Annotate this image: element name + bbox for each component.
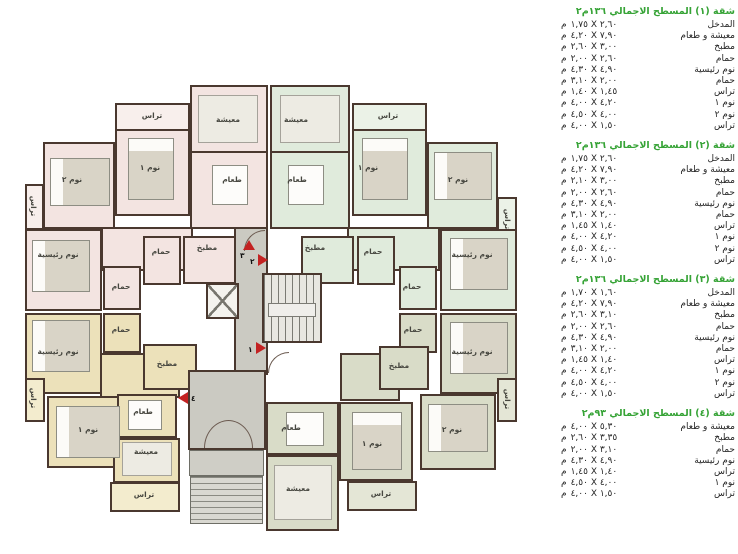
- dimension-value: ٤,٥٠ X ٤,٠٠: [571, 244, 618, 255]
- spec-row: تراسم٤,٠٠ X ١,٥٠: [561, 389, 735, 400]
- dimension-value: ٢,٠٠ X ٢,٦٠: [571, 188, 618, 199]
- room-name: تراس: [714, 389, 735, 400]
- unit-label: م: [561, 76, 567, 87]
- room-dimensions: م٤,٠٠ X ٤,٢٠: [561, 366, 617, 377]
- room-dimensions: م٤,٠٠ X ٤,٢٠: [561, 98, 617, 109]
- room-name: نوم ١: [715, 232, 735, 243]
- apartment-1-title: شقة (١) المسطح الاجمالي ١٣٦م٢: [561, 6, 735, 18]
- room-label: نوم ١: [140, 164, 160, 172]
- room-name: حمام: [716, 322, 735, 333]
- spec-row: نوم ٢م٤,٥٠ X ٤,٠٠: [561, 244, 735, 255]
- room-name: نوم رئيسية: [694, 456, 735, 467]
- unit-label: م: [561, 87, 567, 98]
- room-label: تراس: [29, 196, 37, 216]
- room-label: نوم رئيسية: [37, 251, 78, 259]
- room-dimensions: م٤,٢٠ X ٧,٩٠: [561, 299, 617, 310]
- room-label: مطبخ: [157, 360, 177, 368]
- building-floor-plan: تراس معيشة طعام نوم ١ نوم ٢ تراس نوم رئي…: [0, 0, 560, 554]
- entrance-porch: [189, 450, 264, 476]
- unit-label: م: [561, 210, 567, 221]
- room-dimensions: م٤,٥٠ X ٤,٠٠: [561, 478, 617, 489]
- room-label: تراس: [503, 209, 511, 229]
- room-label: حمام: [112, 283, 131, 291]
- dimension-value: ٢,٦٠ X ٣,٠٠: [571, 42, 618, 53]
- room-dimensions: م٢,٦٠ X ٣,٣٥: [561, 433, 617, 444]
- dimension-value: ٤,٠٠ X ٤,٢٠: [571, 366, 618, 377]
- table-glyph: [288, 165, 324, 205]
- entrance-marker-2: ٢: [250, 257, 255, 266]
- room-name: تراس: [714, 121, 735, 132]
- room-label: معيشة: [284, 116, 308, 124]
- spec-row: حمامم٣,١٠ X ٢,٠٠: [561, 76, 735, 87]
- room-label: طعام: [133, 408, 153, 416]
- dimension-value: ١,٤٥ X ١,٤٠: [571, 221, 618, 232]
- room-dimensions: م٤,٠٠ X ١,٥٠: [561, 121, 617, 132]
- dimension-value: ١,٧٥ X ٢,٦٠: [571, 20, 618, 31]
- room-dimensions: م١,٤٥ X ١,٤٠: [561, 467, 617, 478]
- spec-row: معيشة و طعامم٤,٠٠ X ٥,٣٠: [561, 422, 735, 433]
- room-label: معيشة: [216, 116, 240, 124]
- unit-label: م: [561, 299, 567, 310]
- room-name: المدخل: [707, 288, 735, 299]
- room-name: المدخل: [707, 20, 735, 31]
- floor-plan-page: تراس معيشة طعام نوم ١ نوم ٢ تراس نوم رئي…: [0, 0, 738, 554]
- room-label: مطبخ: [197, 244, 217, 252]
- elevator-glyph: [206, 283, 239, 319]
- spec-row: المدخلم١,٧٠ X ١,٦٠: [561, 288, 735, 299]
- spec-row: نوم رئيسيةم٤,٣٠ X ٤,٩٠: [561, 65, 735, 76]
- spec-row: معيشة و طعامم٤,٢٠ X ٧,٩٠: [561, 165, 735, 176]
- unit-label: م: [561, 54, 567, 65]
- entrance-arrow-3-icon: [243, 240, 255, 250]
- unit-label: م: [561, 422, 567, 433]
- unit-label: م: [561, 165, 567, 176]
- room-dimensions: م١,٤٥ X ١,٤٠: [561, 355, 617, 366]
- dimension-value: ٢,٠٠ X ٢,٦٠: [571, 54, 618, 65]
- room-name: مطبخ: [714, 42, 735, 53]
- entrance-marker-4: ٤: [191, 394, 196, 403]
- spec-row: مطبخم٢,٦٠ X ٣,٠٠: [561, 42, 735, 53]
- apartment-2-spec-block: شقة (٢) المسطح الاجمالي ١٣٦م٢ المدخلم١,٧…: [561, 140, 735, 266]
- room-name: حمام: [716, 445, 735, 456]
- spec-row: حمامم٢,٠٠ X ٢,٦٠: [561, 322, 735, 333]
- dimension-value: ٤,٣٠ X ٤,٩٠: [571, 456, 618, 467]
- room-dimensions: م٢,٦٠ X ٣,١٠: [561, 310, 617, 321]
- dimension-value: ١,٧٠ X ١,٦٠: [571, 288, 618, 299]
- room-label: حمام: [404, 326, 423, 334]
- unit-label: م: [561, 333, 567, 344]
- unit-label: م: [561, 378, 567, 389]
- unit-label: م: [561, 110, 567, 121]
- spec-row: تراسم٤,٠٠ X ١,٥٠: [561, 489, 735, 500]
- unit-label: م: [561, 322, 567, 333]
- stairs-glyph: [262, 273, 322, 343]
- room-label: تراس: [503, 389, 511, 409]
- spec-row: مطبخم٢,٦٠ X ٣,١٠: [561, 310, 735, 321]
- room-dimensions: م٤,٣٠ X ٤,٩٠: [561, 333, 617, 344]
- dimension-value: ٤,٠٠ X ١,٥٠: [571, 389, 618, 400]
- room-dimensions: م٤,٣٠ X ٤,٩٠: [561, 199, 617, 210]
- dimension-value: ٣,١٠ X ٢,٠٠: [571, 210, 618, 221]
- room-name: تراس: [714, 355, 735, 366]
- room-label: معيشة: [134, 448, 158, 456]
- spec-row: حمامم٢,٠٠ X ٢,٦٠: [561, 54, 735, 65]
- spec-row: حمامم٣,١٠ X ٢,٠٠: [561, 210, 735, 221]
- room-name: حمام: [716, 344, 735, 355]
- spec-row: نوم ٢م٤,٥٠ X ٤,٠٠: [561, 110, 735, 121]
- entrance-arrow-1-icon: [256, 342, 266, 354]
- room-name: حمام: [716, 210, 735, 221]
- door-arc: [268, 352, 289, 373]
- dimension-value: ٣,١٠ X ٢,٠٠: [571, 344, 618, 355]
- dimension-value: ٤,٢٠ X ٧,٩٠: [571, 165, 618, 176]
- dimension-value: ٤,٣٠ X ٤,٩٠: [571, 199, 618, 210]
- spec-row: تراسم١,٤٠ X ١,٤٥: [561, 87, 735, 98]
- dimension-value: ٤,٠٠ X ١,٥٠: [571, 255, 618, 266]
- unit-label: م: [561, 478, 567, 489]
- room-label: تراس: [142, 112, 162, 120]
- unit-label: م: [561, 489, 567, 500]
- spec-row: حمامم٢,٠٠ X ٣,١٠: [561, 445, 735, 456]
- apartment-3-title: شقة (٣) المسطح الاجمالي ١٣٦م٢: [561, 274, 735, 286]
- entrance-steps-glyph: [190, 476, 263, 524]
- room-label: مطبخ: [389, 362, 409, 370]
- unit-label: م: [561, 467, 567, 478]
- bed-glyph: [32, 320, 90, 372]
- dimension-value: ٢,٠٠ X ٣,١٠: [571, 445, 618, 456]
- room-label: معيشة: [286, 485, 310, 493]
- entrance-marker-3: ٣: [240, 251, 245, 260]
- spec-row: تراسم١,٤٥ X ١,٤٠: [561, 467, 735, 478]
- spec-row: مطبخم٢,٦٠ X ٣,٣٥: [561, 433, 735, 444]
- spec-row: نوم ٢م٤,٥٠ X ٤,٠٠: [561, 378, 735, 389]
- spec-row: نوم ١م٤,٠٠ X ٤,٢٠: [561, 232, 735, 243]
- room-name: نوم رئيسية: [694, 199, 735, 210]
- spec-row: معيشة و طعامم٤,٢٠ X ٧,٩٠: [561, 299, 735, 310]
- room-apt2-bath2: [357, 236, 395, 285]
- dimension-value: ٢,١٠ X ٣,٠٠: [571, 176, 618, 187]
- spec-row: تراسم١,٤٥ X ١,٤٠: [561, 221, 735, 232]
- room-name: تراس: [714, 87, 735, 98]
- spec-row: تراسم٤,٠٠ X ١,٥٠: [561, 255, 735, 266]
- entrance-marker-1: ١: [248, 345, 253, 354]
- apartment-4-title: شقة (٤) المسطح الاجمالي ٩٣م٢: [561, 408, 735, 420]
- unit-label: م: [561, 355, 567, 366]
- unit-label: م: [561, 288, 567, 299]
- dimension-value: ١,٤٠ X ١,٤٥: [571, 87, 618, 98]
- unit-label: م: [561, 344, 567, 355]
- room-label: حمام: [364, 248, 383, 256]
- room-dimensions: م١,٧٥ X ٢,٦٠: [561, 20, 617, 31]
- room-label: تراس: [371, 490, 391, 498]
- unit-label: م: [561, 154, 567, 165]
- room-name: معيشة و طعام: [680, 299, 735, 310]
- unit-label: م: [561, 176, 567, 187]
- room-label: حمام: [112, 326, 131, 334]
- room-label: نوم ٢: [442, 426, 462, 434]
- dimension-value: ٤,٠٠ X ١,٥٠: [571, 121, 618, 132]
- dimension-value: ٤,٢٠ X ٧,٩٠: [571, 31, 618, 42]
- dimension-value: ٤,٥٠ X ٤,٠٠: [571, 378, 618, 389]
- spec-row: مطبخم٢,١٠ X ٣,٠٠: [561, 176, 735, 187]
- room-name: معيشة و طعام: [680, 31, 735, 42]
- unit-label: م: [561, 31, 567, 42]
- unit-label: م: [561, 65, 567, 76]
- dimension-value: ٢,٦٠ X ٣,١٠: [571, 310, 618, 321]
- room-label: تراس: [134, 491, 154, 499]
- room-dimensions: م٣,١٠ X ٢,٠٠: [561, 344, 617, 355]
- room-label: نوم رئيسية: [37, 348, 78, 356]
- apartment-1-rows: المدخلم١,٧٥ X ٢,٦٠معيشة و طعامم٤,٢٠ X ٧,…: [561, 20, 735, 132]
- unit-label: م: [561, 366, 567, 377]
- room-dimensions: م٣,١٠ X ٢,٠٠: [561, 76, 617, 87]
- room-name: تراس: [714, 221, 735, 232]
- room-label: نوم رئيسية: [451, 348, 492, 356]
- room-label: نوم رئيسية: [451, 251, 492, 259]
- spec-row: معيشة و طعامم٤,٢٠ X ٧,٩٠: [561, 31, 735, 42]
- dimension-value: ٢,٦٠ X ٣,٣٥: [571, 433, 618, 444]
- room-name: تراس: [714, 467, 735, 478]
- dimension-value: ٤,٠٠ X ٥,٣٠: [571, 422, 618, 433]
- room-dimensions: م٤,٠٠ X ٤,٢٠: [561, 232, 617, 243]
- room-label: نوم ١: [358, 164, 378, 172]
- room-label: نوم ٢: [62, 176, 82, 184]
- spec-row: تراسم١,٤٥ X ١,٤٠: [561, 355, 735, 366]
- spec-row: نوم ١م٤,٥٠ X ٤,٠٠: [561, 478, 735, 489]
- unit-label: م: [561, 188, 567, 199]
- room-name: تراس: [714, 255, 735, 266]
- room-name: حمام: [716, 76, 735, 87]
- spec-row: نوم رئيسيةم٤,٣٠ X ٤,٩٠: [561, 333, 735, 344]
- room-apt1-bath2: [143, 236, 181, 285]
- room-label: طعام: [281, 424, 301, 432]
- unit-label: م: [561, 221, 567, 232]
- dimension-value: ٤,٥٠ X ٤,٠٠: [571, 478, 618, 489]
- room-dimensions: م١,٤٠ X ١,٤٥: [561, 87, 617, 98]
- dimension-value: ١,٧٥ X ٢,٦٠: [571, 154, 618, 165]
- room-label: تراس: [378, 112, 398, 120]
- room-name: مطبخ: [714, 176, 735, 187]
- room-name: نوم ٢: [715, 378, 735, 389]
- room-dimensions: م٢,٠٠ X ٢,٦٠: [561, 322, 617, 333]
- room-dimensions: م٢,١٠ X ٣,٠٠: [561, 176, 617, 187]
- room-label: مطبخ: [305, 244, 325, 252]
- room-name: تراس: [714, 489, 735, 500]
- room-name: نوم ١: [715, 98, 735, 109]
- unit-label: م: [561, 244, 567, 255]
- dimension-value: ١,٤٥ X ١,٤٠: [571, 467, 618, 478]
- unit-label: م: [561, 456, 567, 467]
- room-dimensions: م٤,٥٠ X ٤,٠٠: [561, 378, 617, 389]
- room-name: المدخل: [707, 154, 735, 165]
- spec-row: حمامم٢,٠٠ X ٢,٦٠: [561, 188, 735, 199]
- unit-label: م: [561, 42, 567, 53]
- unit-label: م: [561, 98, 567, 109]
- room-name: نوم رئيسية: [694, 65, 735, 76]
- unit-label: م: [561, 232, 567, 243]
- room-name: مطبخ: [714, 433, 735, 444]
- room-label: طعام: [222, 176, 242, 184]
- room-dimensions: م٤,٢٠ X ٧,٩٠: [561, 165, 617, 176]
- room-dimensions: م٢,٦٠ X ٣,٠٠: [561, 42, 617, 53]
- room-dimensions: م١,٤٥ X ١,٤٠: [561, 221, 617, 232]
- room-label: نوم ٢: [448, 176, 468, 184]
- entrance-arrow-2-icon: [258, 254, 268, 266]
- room-name: نوم ٢: [715, 244, 735, 255]
- spec-row: تراسم٤,٠٠ X ١,٥٠: [561, 121, 735, 132]
- spec-row: حمامم٣,١٠ X ٢,٠٠: [561, 344, 735, 355]
- room-name: نوم ١: [715, 366, 735, 377]
- dimension-value: ٤,٢٠ X ٧,٩٠: [571, 299, 618, 310]
- room-label: نوم ١: [78, 426, 98, 434]
- spec-row: نوم رئيسيةم٤,٣٠ X ٤,٩٠: [561, 456, 735, 467]
- table-glyph: [212, 165, 248, 205]
- room-dimensions: م٢,٠٠ X ٣,١٠: [561, 445, 617, 456]
- unit-label: م: [561, 310, 567, 321]
- dimension-value: ٣,١٠ X ٢,٠٠: [571, 76, 618, 87]
- room-name: نوم ٢: [715, 110, 735, 121]
- room-dimensions: م٤,٥٠ X ٤,٠٠: [561, 244, 617, 255]
- apartment-3-rows: المدخلم١,٧٠ X ١,٦٠معيشة و طعامم٤,٢٠ X ٧,…: [561, 288, 735, 400]
- room-label: حمام: [403, 283, 422, 291]
- room-label: طعام: [287, 176, 307, 184]
- entrance-arrow-4-icon: [178, 392, 188, 404]
- room-dimensions: م٤,٠٠ X ١,٥٠: [561, 389, 617, 400]
- bed-glyph: [450, 238, 508, 290]
- room-dimensions: م٤,٠٠ X ١,٥٠: [561, 255, 617, 266]
- room-dimensions: م١,٧٥ X ٢,٦٠: [561, 154, 617, 165]
- unit-label: م: [561, 199, 567, 210]
- room-dimensions: م٣,١٠ X ٢,٠٠: [561, 210, 617, 221]
- room-name: معيشة و طعام: [680, 165, 735, 176]
- dimension-value: ٤,٠٠ X ٤,٢٠: [571, 232, 618, 243]
- apartment-1-spec-block: شقة (١) المسطح الاجمالي ١٣٦م٢ المدخلم١,٧…: [561, 6, 735, 132]
- room-dimensions: م١,٧٠ X ١,٦٠: [561, 288, 617, 299]
- specs-panel: شقة (١) المسطح الاجمالي ١٣٦م٢ المدخلم١,٧…: [561, 6, 735, 509]
- unit-label: م: [561, 255, 567, 266]
- bed-glyph: [32, 240, 90, 292]
- apartment-2-title: شقة (٢) المسطح الاجمالي ١٣٦م٢: [561, 140, 735, 152]
- room-name: مطبخ: [714, 310, 735, 321]
- room-dimensions: م٤,٣٠ X ٤,٩٠: [561, 65, 617, 76]
- unit-label: م: [561, 433, 567, 444]
- apartment-2-rows: المدخلم١,٧٥ X ٢,٦٠معيشة و طعامم٤,٢٠ X ٧,…: [561, 154, 735, 266]
- unit-label: م: [561, 20, 567, 31]
- dimension-value: ٤,٣٠ X ٤,٩٠: [571, 333, 618, 344]
- dimension-value: ١,٤٥ X ١,٤٠: [571, 355, 618, 366]
- dimension-value: ٤,٠٠ X ١,٥٠: [571, 489, 618, 500]
- dimension-value: ٤,٣٠ X ٤,٩٠: [571, 65, 618, 76]
- room-label: تراس: [29, 388, 37, 408]
- spec-row: المدخلم١,٧٥ X ٢,٦٠: [561, 154, 735, 165]
- apartment-4-spec-block: شقة (٤) المسطح الاجمالي ٩٣م٢ معيشة و طعا…: [561, 408, 735, 500]
- dimension-value: ٤,٥٠ X ٤,٠٠: [571, 110, 618, 121]
- spec-row: نوم ١م٤,٠٠ X ٤,٢٠: [561, 366, 735, 377]
- room-dimensions: م٤,٠٠ X ٥,٣٠: [561, 422, 617, 433]
- room-dimensions: م٢,٠٠ X ٢,٦٠: [561, 188, 617, 199]
- room-name: معيشة و طعام: [680, 422, 735, 433]
- unit-label: م: [561, 389, 567, 400]
- dimension-value: ٤,٠٠ X ٤,٢٠: [571, 98, 618, 109]
- room-dimensions: م٤,٥٠ X ٤,٠٠: [561, 110, 617, 121]
- room-dimensions: م٤,٣٠ X ٤,٩٠: [561, 456, 617, 467]
- room-name: نوم ١: [715, 478, 735, 489]
- room-label: حمام: [152, 248, 171, 256]
- room-label: نوم ١: [362, 440, 382, 448]
- room-name: حمام: [716, 188, 735, 199]
- room-name: حمام: [716, 54, 735, 65]
- room-dimensions: م٤,٠٠ X ١,٥٠: [561, 489, 617, 500]
- room-dimensions: م٤,٢٠ X ٧,٩٠: [561, 31, 617, 42]
- spec-row: نوم رئيسيةم٤,٣٠ X ٤,٩٠: [561, 199, 735, 210]
- room-name: نوم رئيسية: [694, 333, 735, 344]
- spec-row: المدخلم١,٧٥ X ٢,٦٠: [561, 20, 735, 31]
- apartment-4-rows: معيشة و طعامم٤,٠٠ X ٥,٣٠مطبخم٢,٦٠ X ٣,٣٥…: [561, 422, 735, 500]
- apartment-3-spec-block: شقة (٣) المسطح الاجمالي ١٣٦م٢ المدخلم١,٧…: [561, 274, 735, 400]
- spec-row: نوم ١م٤,٠٠ X ٤,٢٠: [561, 98, 735, 109]
- room-dimensions: م٢,٠٠ X ٢,٦٠: [561, 54, 617, 65]
- unit-label: م: [561, 121, 567, 132]
- unit-label: م: [561, 445, 567, 456]
- dimension-value: ٢,٠٠ X ٢,٦٠: [571, 322, 618, 333]
